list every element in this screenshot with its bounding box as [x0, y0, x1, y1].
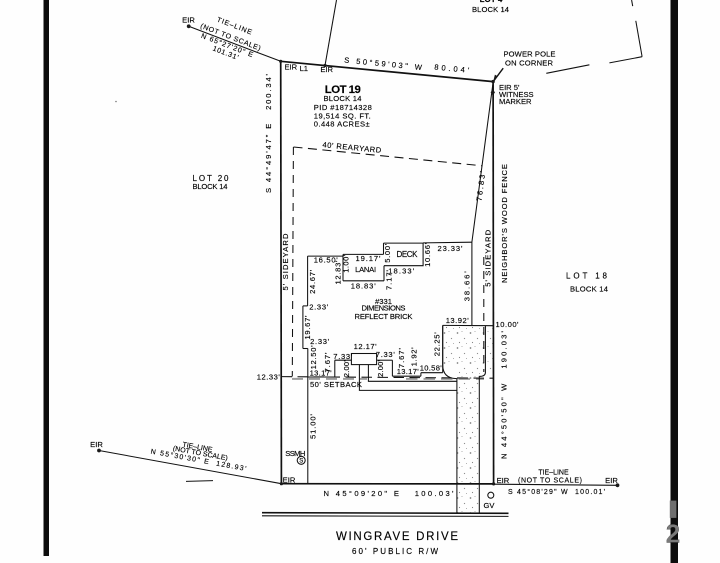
svg-text:2.33': 2.33'	[310, 337, 330, 346]
svg-text:10.66': 10.66'	[423, 242, 432, 267]
svg-text:LOT 4: LOT 4	[480, 0, 503, 4]
svg-text:L1: L1	[300, 64, 308, 73]
svg-text:EIR: EIR	[284, 63, 297, 72]
svg-text:7.67': 7.67'	[397, 348, 406, 369]
svg-text:12.17': 12.17'	[354, 342, 378, 351]
svg-text:12.33': 12.33'	[257, 373, 281, 382]
svg-text:S 44°49'47" E 200.34': S 44°49'47" E 200.34'	[264, 73, 273, 193]
svg-text:12.50': 12.50'	[309, 345, 318, 370]
svg-text:2.00': 2.00'	[376, 359, 385, 377]
svg-text:5.00': 5.00'	[383, 243, 392, 263]
svg-text:EIR: EIR	[497, 476, 510, 485]
svg-text:EIR: EIR	[283, 475, 296, 484]
svg-text:13.92': 13.92'	[446, 316, 470, 325]
svg-text:SSMH: SSMH	[285, 449, 305, 458]
svg-text:N 44°50'50" W 190.03': N 44°50'50" W 190.03'	[500, 330, 509, 459]
svg-text:7.67': 7.67'	[323, 352, 332, 373]
svg-text:1.92': 1.92'	[409, 347, 418, 367]
svg-text:GV: GV	[484, 501, 496, 510]
svg-text:S 45°08'29" W 100.01': S 45°08'29" W 100.01'	[508, 488, 605, 496]
svg-text:7.33': 7.33'	[333, 352, 353, 361]
svg-text:BLOCK 14: BLOCK 14	[570, 285, 608, 294]
svg-text:7.33': 7.33'	[376, 350, 396, 359]
svg-text:2.33': 2.33'	[309, 302, 329, 311]
svg-text:REFLECT BRICK: REFLECT BRICK	[355, 312, 413, 321]
svg-text:S: S	[299, 459, 303, 465]
svg-text:22.25': 22.25'	[432, 332, 441, 357]
svg-text:BLOCK 14: BLOCK 14	[193, 182, 228, 191]
svg-text:50' SETBACK: 50' SETBACK	[310, 380, 362, 389]
svg-text:19.17': 19.17'	[356, 254, 382, 263]
svg-text:2: 2	[666, 519, 680, 549]
svg-text:EIR: EIR	[605, 476, 618, 485]
svg-text:EIR: EIR	[90, 440, 103, 449]
svg-text:LANAI: LANAI	[355, 265, 376, 274]
svg-text:BLOCK 14: BLOCK 14	[472, 5, 509, 14]
svg-text:10.58': 10.58'	[420, 364, 443, 373]
svg-text:N 45°09'20" E 100.03': N 45°09'20" E 100.03'	[324, 489, 455, 498]
svg-text:18.83': 18.83'	[351, 282, 377, 291]
svg-text:POWER POLE: POWER POLE	[504, 50, 556, 59]
svg-text:24.67': 24.67'	[308, 269, 317, 294]
svg-text:19.67': 19.67'	[303, 315, 312, 340]
svg-text:TIE–LINE: TIE–LINE	[538, 469, 569, 476]
svg-text:1.00': 1.00'	[341, 254, 350, 273]
svg-text:5' SIDEYARD: 5' SIDEYARD	[281, 233, 290, 291]
svg-text:2.00': 2.00'	[342, 360, 351, 378]
svg-text:(NOT TO SCALE): (NOT TO SCALE)	[518, 478, 582, 485]
svg-text:10.00': 10.00'	[496, 320, 520, 329]
svg-text:23.33': 23.33'	[438, 244, 464, 253]
svg-text:NEIGHBOR'S WOOD FENCE: NEIGHBOR'S WOOD FENCE	[500, 164, 509, 283]
svg-text:60' PUBLIC R/W: 60' PUBLIC R/W	[352, 547, 438, 556]
svg-text:ON CORNER: ON CORNER	[505, 59, 554, 68]
svg-text:0.448 ACRES±: 0.448 ACRES±	[314, 120, 370, 129]
svg-text:51.00': 51.00'	[308, 413, 317, 439]
svg-text:7.17': 7.17'	[384, 269, 393, 290]
svg-text:EIR: EIR	[182, 16, 195, 25]
svg-text:13.17': 13.17'	[397, 367, 420, 376]
svg-text:DECK: DECK	[397, 250, 419, 259]
svg-text:12.83': 12.83'	[334, 260, 343, 285]
svg-text:5' SIDEYARD: 5' SIDEYARD	[484, 229, 493, 287]
svg-text:MARKER: MARKER	[499, 97, 532, 106]
svg-text:EIR: EIR	[320, 65, 333, 74]
